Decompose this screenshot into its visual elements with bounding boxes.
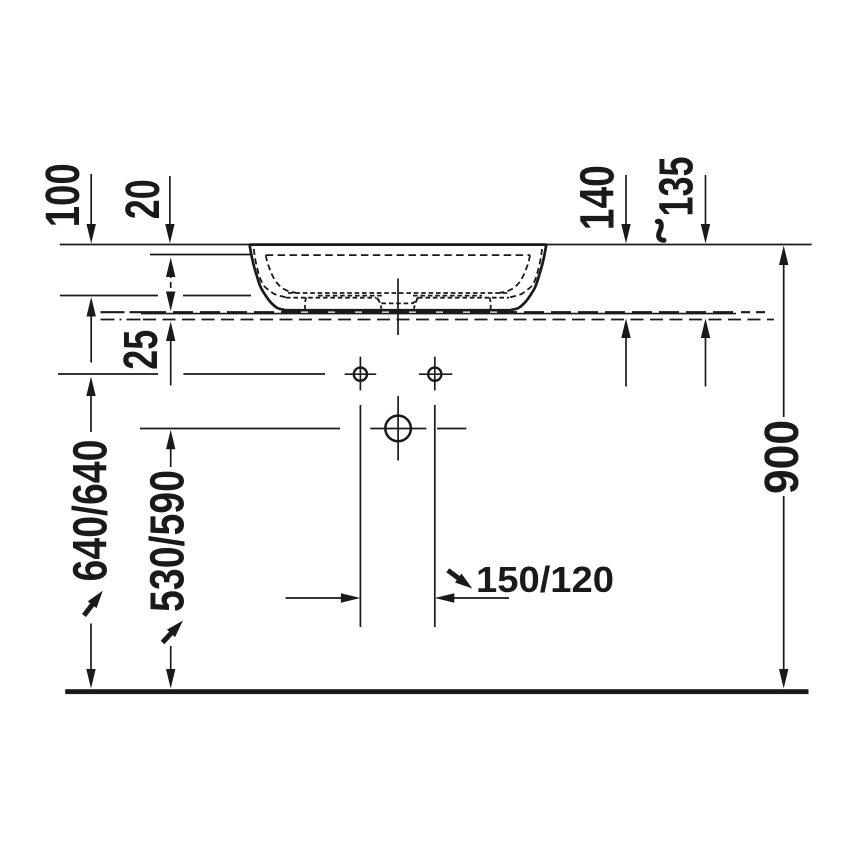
svg-text:640/640: 640/640	[64, 440, 117, 582]
svg-text:20: 20	[117, 179, 170, 219]
svg-text:150/120: 150/120	[476, 559, 614, 600]
svg-text:530/590: 530/590	[141, 470, 194, 612]
svg-text:25: 25	[115, 330, 168, 370]
svg-text:140: 140	[572, 165, 625, 230]
svg-text:900: 900	[756, 420, 809, 494]
svg-text:100: 100	[37, 163, 90, 227]
svg-text:135: 135	[651, 157, 704, 217]
